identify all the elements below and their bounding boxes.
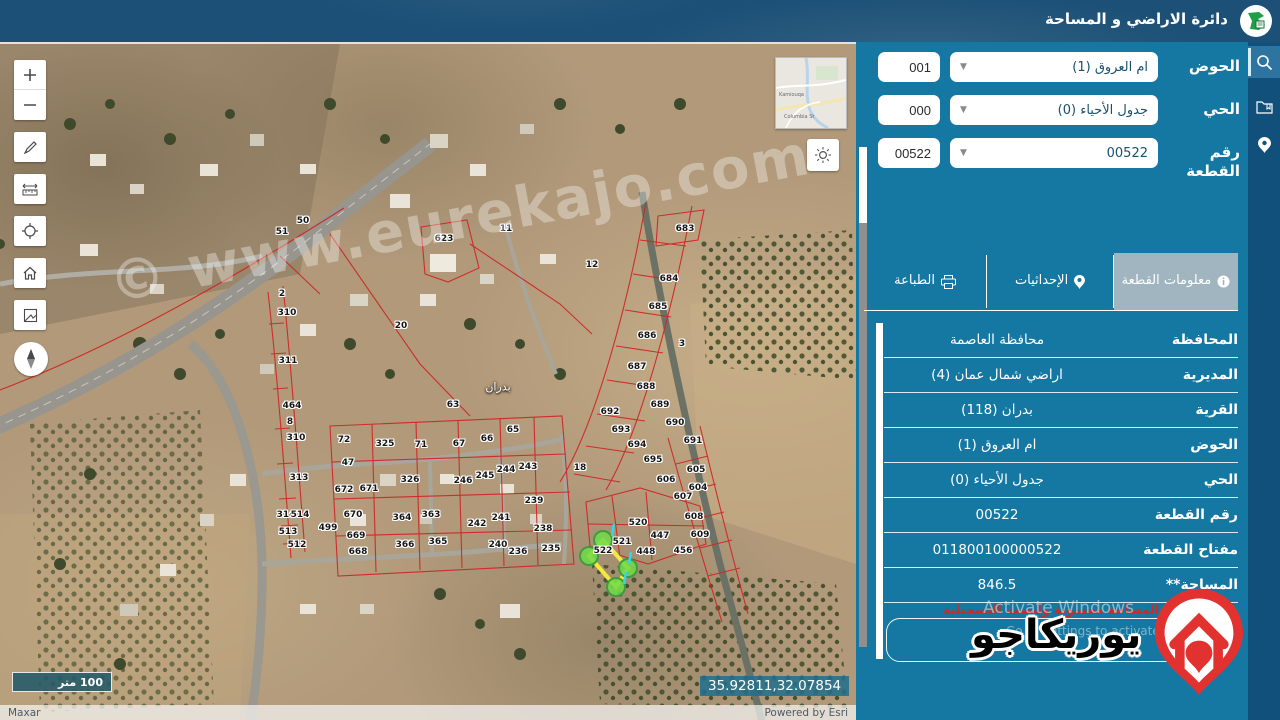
activate-windows-text: Activate Windows (983, 598, 1134, 618)
minus-icon (23, 98, 37, 112)
basin-row: الحوض ام العروق (1)▼ (878, 52, 1240, 82)
village-label: بدران (485, 381, 510, 394)
district-label: الحي (1168, 95, 1240, 119)
panel-tabs: معلومات القطعة الإحداثيات الطباعة (864, 253, 1238, 311)
brightness-button[interactable] (807, 139, 839, 171)
app-title: دائرة الاراضي و المساحة (1045, 10, 1228, 28)
home-icon (22, 266, 38, 281)
parcel-number-row: رقم القطعة 00522▼ (878, 138, 1240, 181)
basemap-button[interactable] (14, 300, 46, 330)
chevron-down-icon: ▼ (960, 148, 967, 158)
tab-parcel-info[interactable]: معلومات القطعة (1114, 253, 1238, 310)
table-row: المديريةاراضي شمال عمان (4) (884, 358, 1238, 393)
jordan-map-icon (1244, 9, 1268, 33)
table-row: المحافظةمحافظة العاصمة (884, 323, 1238, 358)
parcel-number-select[interactable]: 00522▼ (950, 138, 1158, 168)
pin-icon (1074, 275, 1085, 289)
tab-separator (1113, 255, 1114, 308)
dls-logo (1240, 5, 1272, 37)
overview-inset-map[interactable]: Kamiouqa Columbia St (775, 57, 847, 129)
parcel-info-table: المحافظةمحافظة العاصمة المديريةاراضي شما… (884, 323, 1238, 603)
attribution-maxar: Maxar (8, 707, 40, 719)
attribution-esri: Powered by Esri (764, 707, 848, 719)
parcel-number-code-input[interactable] (878, 138, 940, 168)
side-nav (1248, 42, 1280, 720)
table-row: الحوضام العروق (1) (884, 428, 1238, 463)
map-overlay-graphics (0, 44, 856, 720)
compass-button[interactable] (14, 342, 48, 376)
basin-select[interactable]: ام العروق (1)▼ (950, 52, 1158, 82)
parcel-panel: الحوض ام العروق (1)▼ الحي جدول الأحياء (… (856, 42, 1248, 720)
scale-bar: 100 متر (12, 672, 112, 692)
nav-files[interactable] (1248, 92, 1280, 122)
plus-icon (23, 68, 37, 82)
target-icon (22, 223, 38, 239)
location-icon (1258, 137, 1271, 153)
chevron-down-icon: ▼ (960, 105, 967, 115)
table-row: رقم القطعة00522 (884, 498, 1238, 533)
basin-code-input[interactable] (878, 52, 940, 82)
district-select[interactable]: جدول الأحياء (0)▼ (950, 95, 1158, 125)
map-attribution: Maxar Powered by Esri (0, 705, 856, 720)
locate-button[interactable] (14, 216, 46, 246)
nav-search[interactable] (1248, 46, 1280, 78)
home-button[interactable] (14, 258, 46, 288)
app-header: دائرة الاراضي و المساحة (0, 0, 1280, 42)
pencil-icon (23, 140, 38, 155)
compass-needle-icon (25, 348, 37, 370)
map-toolbar (14, 60, 46, 376)
map-canvas[interactable]: 5051623111268368468568632310203114648310… (0, 42, 856, 720)
table-accent-bar (876, 323, 883, 659)
sun-icon (814, 146, 832, 164)
tab-separator (986, 255, 987, 308)
zoom-out-button[interactable] (14, 90, 46, 120)
inset-label: Kamiouqa (779, 92, 804, 98)
nav-location[interactable] (1248, 130, 1280, 160)
district-code-input[interactable] (878, 95, 940, 125)
district-row: الحي جدول الأحياء (0)▼ (878, 95, 1240, 125)
zoom-in-button[interactable] (14, 60, 46, 90)
printer-icon (941, 275, 956, 289)
table-row: مفتاح القطعة011800100000522 (884, 533, 1238, 568)
panel-scrollbar[interactable] (859, 147, 867, 647)
tab-coordinates[interactable]: الإحداثيات (987, 253, 1113, 310)
activate-windows-subtext: Go to Settings to activate Windows. (1006, 624, 1221, 638)
table-row: الحيجدول الأحياء (0) (884, 463, 1238, 498)
files-icon (1256, 100, 1273, 114)
basin-label: الحوض (1168, 52, 1240, 76)
scrollbar-thumb[interactable] (859, 147, 867, 223)
coordinates-readout: 35.92811,32.07854 (700, 676, 849, 696)
search-icon (1256, 54, 1273, 71)
chevron-down-icon: ▼ (960, 62, 967, 72)
ruler-icon (21, 182, 39, 197)
inset-label: Columbia St (784, 114, 814, 120)
tab-print[interactable]: الطباعة (864, 253, 986, 310)
info-icon (1217, 275, 1230, 288)
table-row: القريةبدران (118) (884, 393, 1238, 428)
draw-button[interactable] (14, 132, 46, 162)
basemap-icon (23, 308, 38, 323)
measure-button[interactable] (14, 174, 46, 204)
parcel-number-label: رقم القطعة (1168, 138, 1240, 181)
